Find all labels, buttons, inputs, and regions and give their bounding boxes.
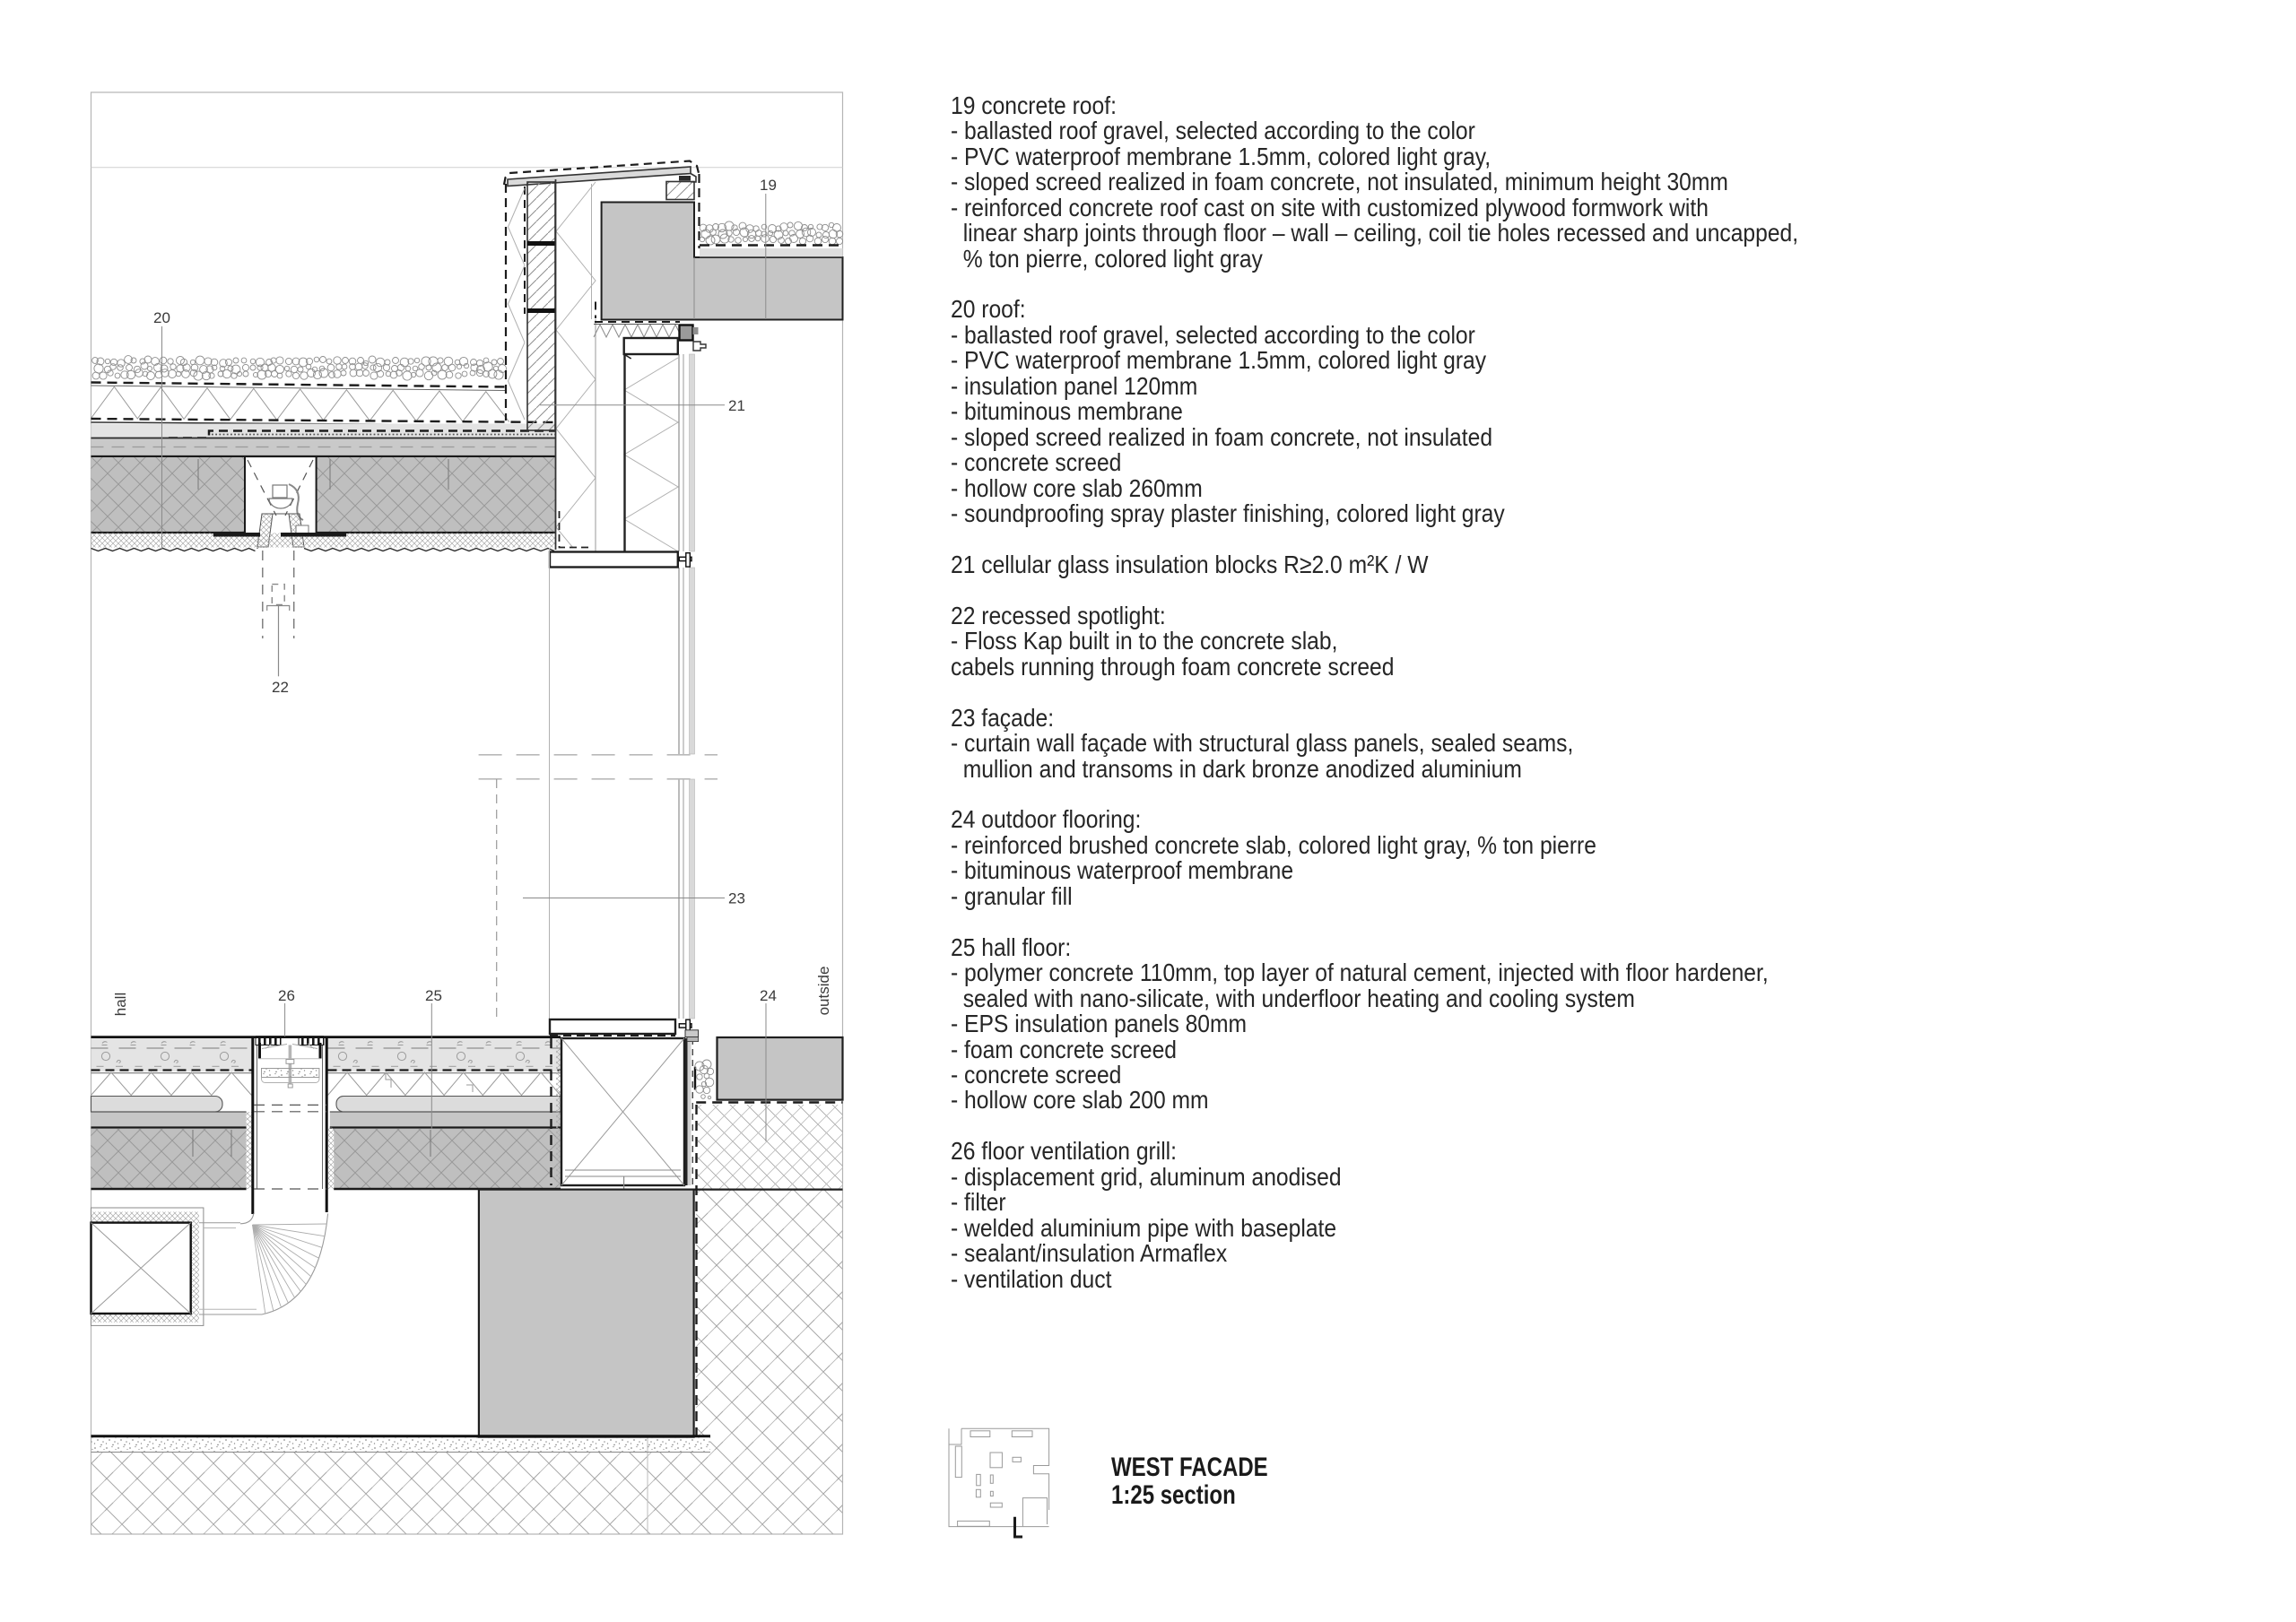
svg-text:22: 22 <box>272 679 289 696</box>
svg-text:21: 21 <box>728 397 745 414</box>
svg-text:19: 19 <box>760 177 777 194</box>
svg-text:23: 23 <box>728 890 745 907</box>
svg-text:24: 24 <box>760 987 777 1004</box>
svg-text:25: 25 <box>425 987 442 1004</box>
svg-text:20: 20 <box>153 309 170 326</box>
svg-text:26: 26 <box>278 987 295 1004</box>
svg-text:outside: outside <box>815 967 832 1016</box>
svg-text:hall: hall <box>112 993 129 1016</box>
